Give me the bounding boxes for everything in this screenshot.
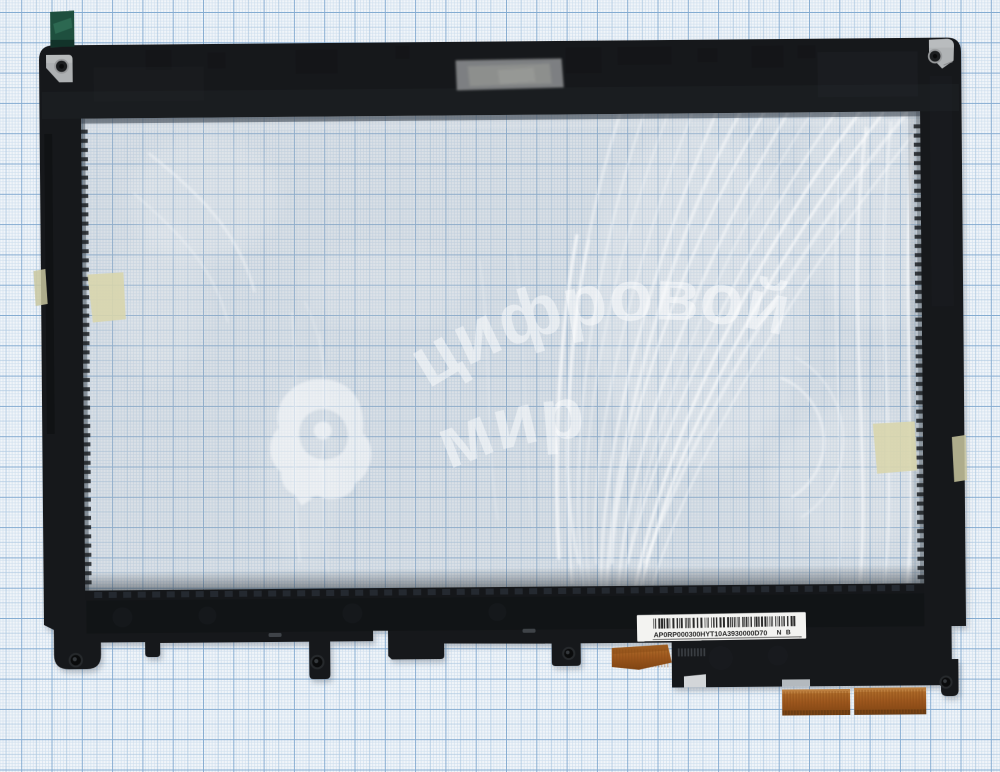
svg-text:NB: NB <box>777 629 796 636</box>
